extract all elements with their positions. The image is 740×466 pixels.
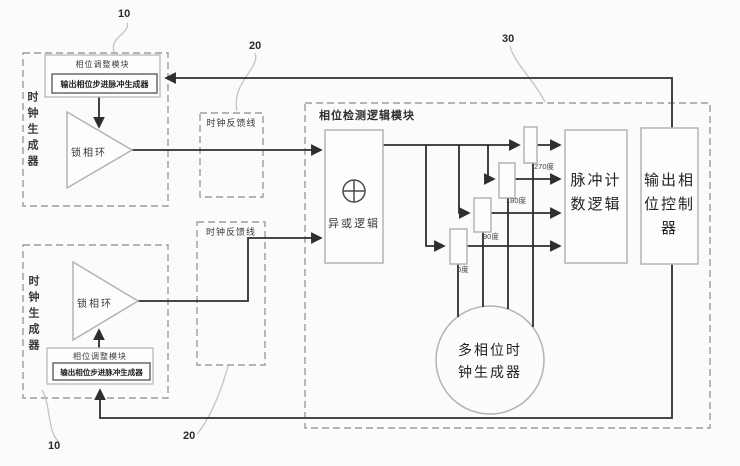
phase-detect-logic-title: 相位检测逻辑模块 [319,107,415,123]
clock-feedback-bottom-boundary [197,222,265,365]
ref-numeral-20-top: 20 [249,40,261,52]
xor-logic-label: 异或逻辑 [325,215,383,231]
feedback-wire-bottom [100,264,672,418]
leader-30 [510,46,545,102]
leader-20-top [236,53,256,111]
pll-label-bottom: 锁相环 [77,295,113,310]
tap-box-270deg [524,127,537,163]
leader-20-bottom [197,366,228,434]
pulse-generator-label-bottom: 输出相位步进脉冲生成器 [53,367,150,378]
phase-controller-label-line3: 器 [641,217,698,238]
multiphase-clock-label-line1: 多相位时 [442,340,538,360]
tap-box-180deg [499,163,515,198]
tap-label-90deg: 90度 [483,231,499,242]
clock-generator-bottom-title: 时钟生成器 [25,275,41,355]
patent-clock-phase-diagram: 10 20 30 10 20 时钟生成器 锁相环 相位调整模块 输出相位步进脉冲… [0,0,740,466]
tap-box-90deg [474,198,491,232]
ref-numeral-10-top: 10 [118,8,130,20]
adjust-module-label-bottom: 相位调整模块 [47,351,153,362]
tap-label-0deg: 0度 [457,264,469,275]
branch-wire-180deg [488,145,494,179]
pll-label-top: 锁相环 [71,144,107,159]
multiphase-clock-label-line2: 钟生成器 [442,362,538,382]
ref-numeral-20-bottom: 20 [183,430,195,442]
ref-numeral-10-bottom: 10 [48,440,60,452]
clock-feedback-label-top: 时钟反馈线 [200,116,263,129]
pll-bottom-output-wire [138,238,321,301]
branch-wire-0deg [426,145,444,246]
tap-label-180deg: 180度 [506,195,526,206]
ref-numeral-30: 30 [502,33,514,45]
clock-feedback-label-bottom: 时钟反馈线 [197,225,265,238]
phase-adjust-modules [45,55,160,384]
tap-box-0deg [450,229,467,264]
xor-circle-plus-icon [343,180,365,202]
multiphase-clock-generator-circle [436,306,544,414]
adjust-module-label-top: 相位调整模块 [45,59,160,70]
phase-controller-label-line2: 位控制 [641,193,698,214]
pulse-counter-label-line2: 数逻辑 [565,193,627,214]
phase-controller-label-line1: 输出相 [641,169,698,190]
tap-label-270deg: 270度 [534,161,554,172]
pulse-generator-label-top: 输出相位步进脉冲生成器 [52,79,157,90]
pulse-counter-label-line1: 脉冲计 [565,169,627,190]
branch-wire-90deg [459,145,469,213]
clock-generator-top-title: 时钟生成器 [24,91,40,171]
leader-10-top [113,23,127,52]
